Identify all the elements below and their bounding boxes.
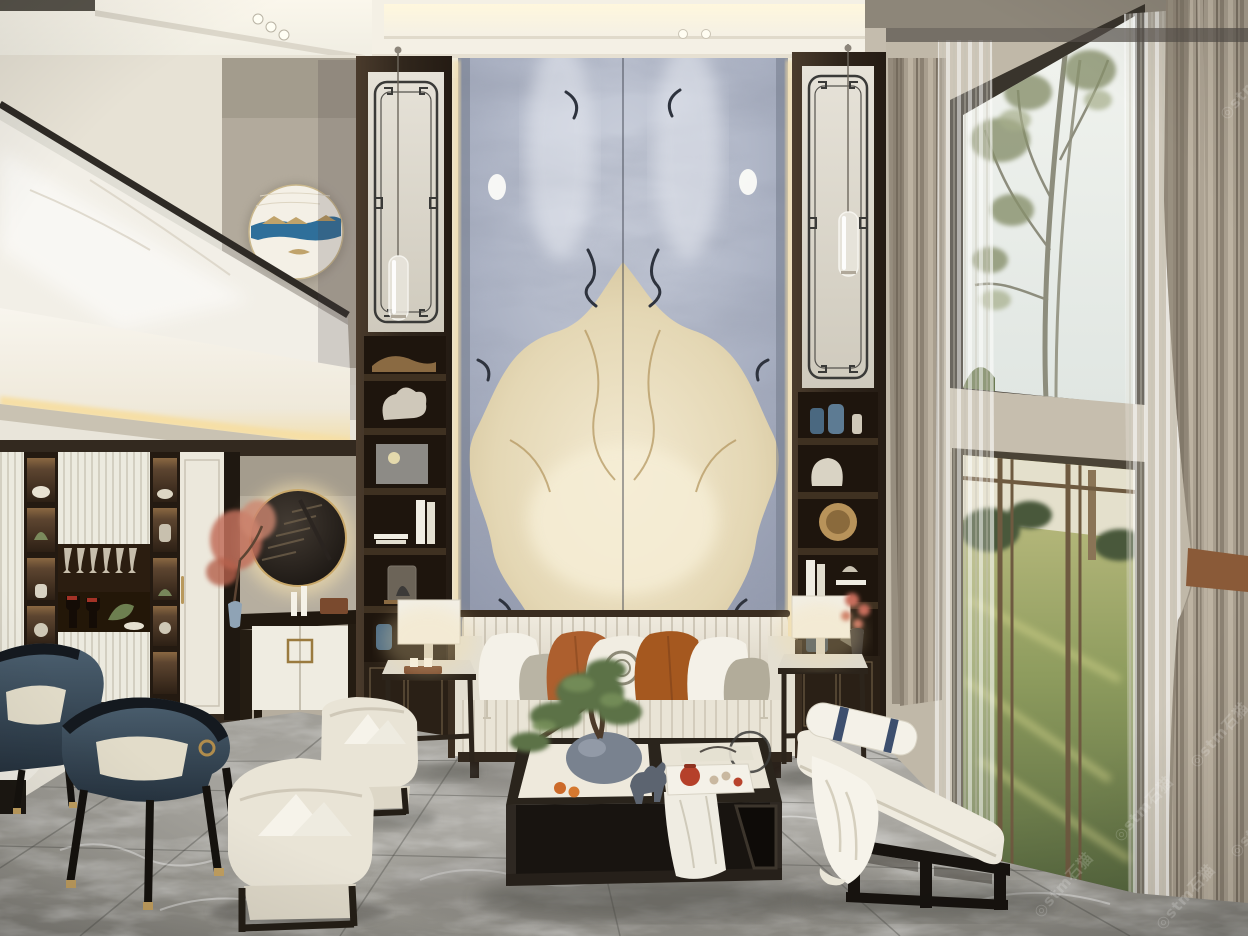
living-room-photo: ◎stm石猫 ◎stm石猫 ◎stm石猫 ◎stm石猫 ◎stm石猫 ◎stm石… [0,0,1248,936]
scene-root: ◎stm石猫 ◎stm石猫 ◎stm石猫 ◎stm石猫 ◎stm石猫 ◎stm石… [0,0,1248,936]
vignette [0,0,1248,936]
